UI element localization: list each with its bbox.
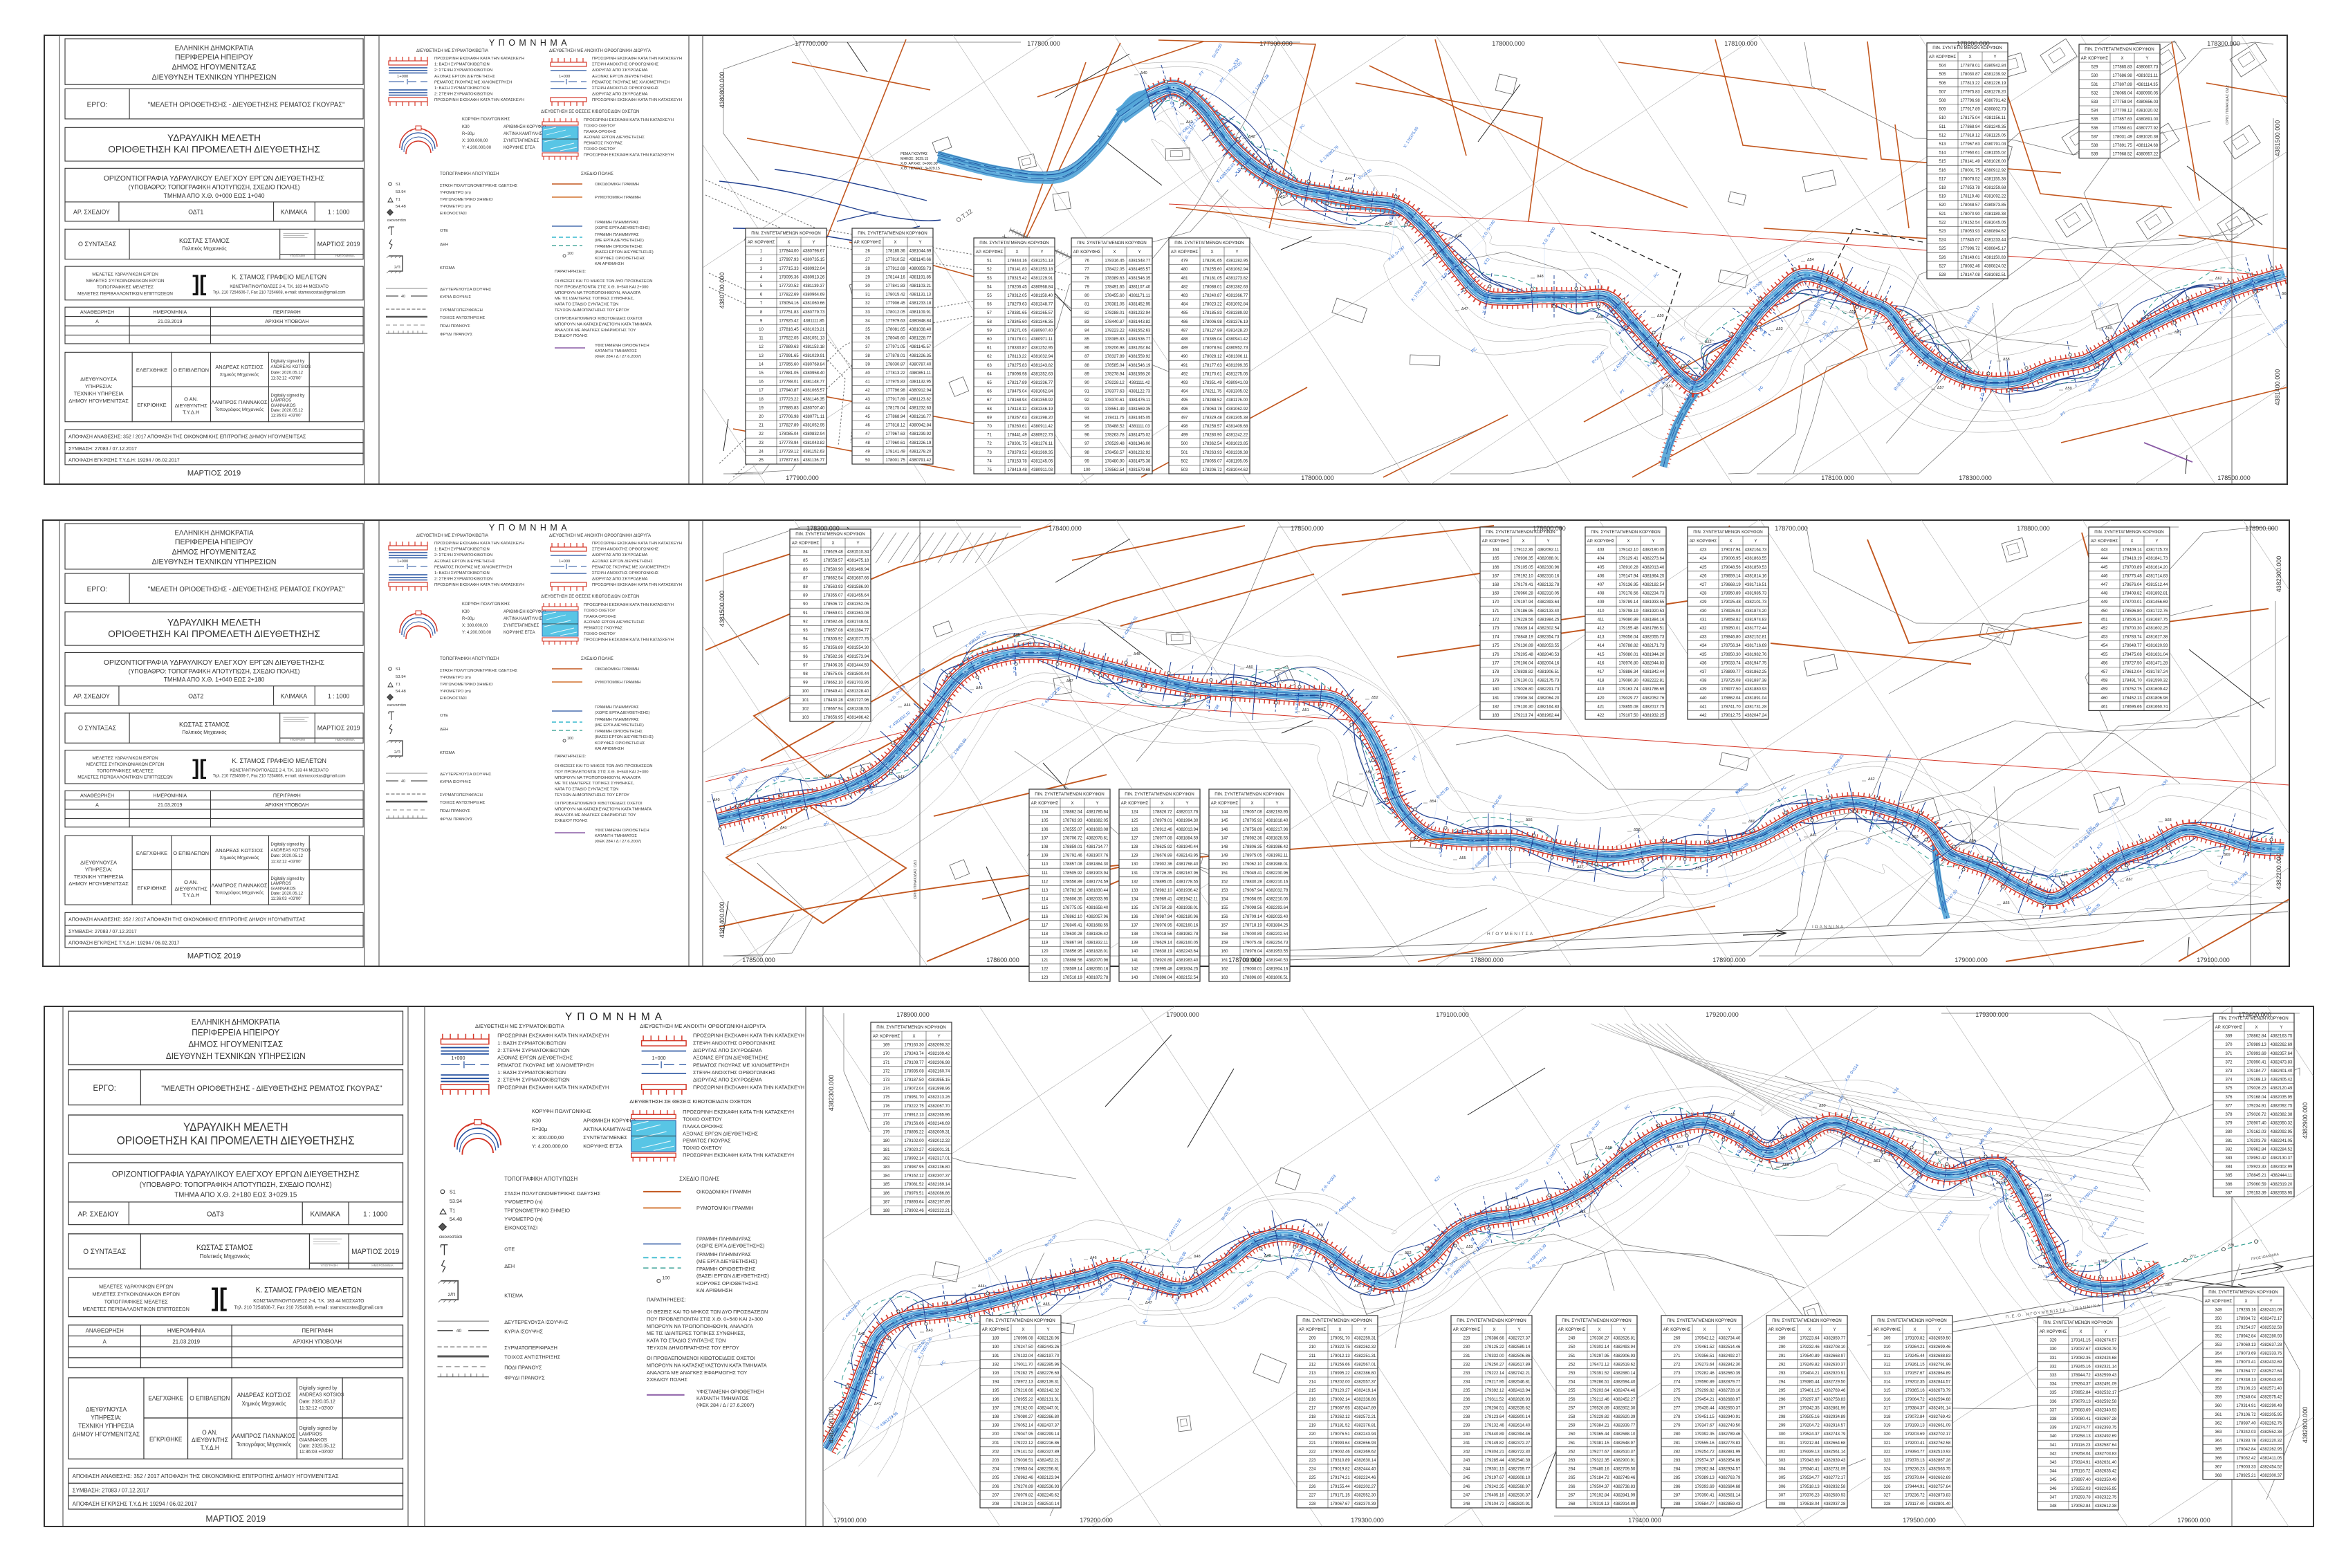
svg-text:294: 294 [1778,1381,1786,1385]
svg-text:GIANNAKOS: GIANNAKOS [299,1438,328,1443]
svg-text:383: 383 [2225,1156,2233,1161]
svg-text:178582.36: 178582.36 [823,655,843,659]
svg-text:X: X [2079,1330,2082,1334]
svg-text:4381569.35: 4381569.35 [1129,407,1151,412]
svg-text:54: 54 [987,285,992,289]
svg-text:Δ45: Δ45 [1043,1302,1050,1307]
svg-text:4382251.31: 4382251.31 [1354,1354,1376,1358]
svg-text:277: 277 [2190,1255,2196,1259]
svg-text:4382729.50: 4382729.50 [1824,1381,1846,1385]
svg-text:143: 143 [1131,976,1138,980]
svg-text:175: 175 [883,1096,890,1100]
svg-text:178592.46: 178592.46 [823,620,843,624]
svg-text:4382589.14: 4382589.14 [1508,1345,1531,1349]
svg-text:179518.04: 179518.04 [1800,1502,1820,1506]
svg-text:4382552.30: 4382552.30 [1354,1493,1376,1497]
svg-text:51: 51 [987,259,992,264]
svg-text:4382826.93: 4382826.93 [1508,1398,1531,1402]
svg-text:41: 41 [865,380,870,385]
svg-text:138: 138 [1131,932,1138,937]
svg-text:179330.27: 179330.27 [1589,1337,1609,1341]
svg-text:ΚΛΙΜΑΚΑ: ΚΛΙΜΑΚΑ [281,692,308,699]
svg-text:4382424.68: 4382424.68 [2095,1356,2117,1361]
svg-text:419: 419 [1597,688,1605,692]
svg-text:4382336.86: 4382336.86 [1354,1398,1376,1402]
svg-text:ΠΑΡΑΤΗΡΗΣΕΙΣ:: ΠΑΡΑΤΗΡΗΣΕΙΣ: [555,755,586,759]
svg-text:178411.75: 178411.75 [1105,416,1125,420]
svg-text:436: 436 [1699,661,1707,665]
svg-text:4382864.89: 4382864.89 [1929,1372,1951,1376]
svg-text:Χημικός Μηχανικός: Χημικός Μηχανικός [219,371,259,377]
svg-text:21.03.2019: 21.03.2019 [172,1338,200,1345]
svg-text:4382839.77: 4382839.77 [1614,1424,1636,1428]
svg-text:Δ57: Δ57 [1677,1145,1683,1150]
svg-text:Digitally signed by: Digitally signed by [271,393,306,398]
svg-text:178291.65: 178291.65 [1202,259,1222,264]
svg-text:178054.16: 178054.16 [779,302,799,306]
svg-text:179141.15: 179141.15 [2071,1339,2091,1343]
svg-text:179019.82: 179019.82 [1330,1468,1350,1472]
svg-text:4382563.75: 4382563.75 [1929,1468,1951,1472]
svg-text:179242.03: 179242.03 [2236,1430,2256,1435]
svg-text:178300.000: 178300.000 [806,525,840,532]
svg-text:338: 338 [2049,1417,2057,1421]
svg-text:Δ61: Δ61 [1810,833,1817,838]
svg-text:535: 535 [2091,118,2098,122]
svg-text:178934.72: 178934.72 [2236,1317,2256,1321]
svg-text:Δ66: Δ66 [2061,874,2068,878]
svg-text:178976.95: 178976.95 [1152,923,1172,928]
svg-text:178305.92: 178305.92 [823,638,843,642]
svg-text:4381278.20: 4381278.20 [1984,90,2006,94]
svg-text:(ΦΕΚ 284 / Δ / 27.6.2007): (ΦΕΚ 284 / Δ / 27.6.2007) [595,840,641,844]
svg-text:Y: Y [1275,802,1278,806]
svg-text:179264.37: 179264.37 [2071,1383,2091,1387]
svg-text:Κ. ΣΤΑΜΟΣ ΓΡΑΦΕΙΟ ΜΕΛΕΤΩΝ: Κ. ΣΤΑΜΟΣ ΓΡΑΦΕΙΟ ΜΕΛΕΤΩΝ [256,1286,362,1294]
svg-text:Y: Y [1517,1328,1520,1332]
svg-text:4381273.82: 4381273.82 [1226,277,1248,281]
svg-text:177900.000: 177900.000 [786,474,819,481]
svg-text:178119.48: 178119.48 [1961,195,1981,199]
svg-text:178100.000: 178100.000 [1821,474,1854,481]
svg-text:178422.05: 178422.05 [1105,268,1125,272]
svg-text:320: 320 [1883,1432,1891,1437]
svg-text:ΤΟΠΟΓΡΑΦΙΚΗ ΑΠΟΤΥΠΩΣΗ: ΤΟΠΟΓΡΑΦΙΚΗ ΑΠΟΤΥΠΩΣΗ [440,656,499,661]
svg-text:Y: 4.200.000,00: Y: 4.200.000,00 [462,146,492,150]
svg-text:178659.01: 178659.01 [823,611,843,616]
svg-text:ΤΕΧΝΙΚΗ ΥΠΗΡΕΣΙΑ: ΤΕΧΝΙΚΗ ΥΠΗΡΕΣΙΑ [78,1422,134,1429]
svg-text:179080.27: 179080.27 [1013,1415,1033,1419]
svg-text:ΑΡ. ΚΟΡΥΦΗΣ: ΑΡ. ΚΟΡΥΦΗΣ [1663,1328,1691,1332]
svg-text:40: 40 [456,1329,462,1334]
svg-text:178658.82: 178658.82 [1721,618,1741,622]
svg-text:4381239.92: 4381239.92 [1984,73,2006,77]
svg-text:272: 272 [1673,1363,1681,1367]
svg-text:4381548.77: 4381548.77 [1129,259,1151,264]
svg-text:530: 530 [2091,74,2098,78]
svg-text:178045.60: 178045.60 [885,337,905,341]
svg-text:Y: Y [1833,1328,1836,1332]
svg-text:ΚΟΡΥΦΗ ΠΟΛΥΓΩΝΙΚΗΣ: ΚΟΡΥΦΗ ΠΟΛΥΓΩΝΙΚΗΣ [462,602,510,607]
svg-text:4381189.38: 4381189.38 [1984,212,2006,216]
svg-text:178263.93: 178263.93 [1202,451,1222,455]
svg-text:177715.33: 177715.33 [779,267,799,271]
svg-text:179524.37: 179524.37 [1800,1432,1820,1437]
svg-text:174: 174 [1492,636,1499,640]
svg-text:ΡΕΜΑΤΟΣ ΓΚΟΥΡΑΣ: ΡΕΜΑΤΟΣ ΓΚΟΥΡΑΣ [584,142,622,146]
svg-text:Δ51: Δ51 [1666,385,1673,389]
svg-text:4380911.03: 4380911.03 [1031,468,1053,472]
svg-text:X: X [1627,539,1629,544]
svg-text:4381243.82: 4381243.82 [1031,364,1053,368]
svg-text:158: 158 [1221,932,1228,937]
svg-text:4382557.37: 4382557.37 [1354,1381,1376,1385]
svg-text:513: 513 [1939,142,1946,147]
svg-text:494: 494 [1181,390,1188,394]
svg-text:4381512.44: 4381512.44 [2146,583,2168,587]
svg-text:408: 408 [1597,592,1605,596]
svg-text:ΠΕΡΙΦΕΡΕΙΑ ΗΠΕΙΡΟΥ: ΠΕΡΙΦΕΡΕΙΑ ΗΠΕΙΡΟΥ [175,53,253,62]
svg-text:221: 221 [1309,1441,1316,1446]
svg-text:4381828.55: 4381828.55 [1266,836,1289,840]
svg-text:ΡΕΜΑΤΟΣ ΓΚΟΥΡΑΣ ΜΕ ΧΙΛΙΟΜΕΤΡΗΣ: ΡΕΜΑΤΟΣ ΓΚΟΥΡΑΣ ΜΕ ΧΙΛΙΟΜΕΤΡΗΣΗ [592,80,669,84]
svg-text:179248.04: 179248.04 [2236,1396,2256,1400]
svg-text:ΔΙΕΥΘΕΤΗΣΗ ΜΕ ΑΝΟΙΧΤΗ ΟΡΘΟΓΩΝΙ: ΔΙΕΥΘΕΤΗΣΗ ΜΕ ΑΝΟΙΧΤΗ ΟΡΘΟΓΩΝΙΚΗ ΔΙΩΡΥΓΑ [640,1023,766,1029]
svg-text:Κ30: Κ30 [462,610,470,614]
svg-text:Δ43: Δ43 [898,775,905,780]
svg-text:178023.22: 178023.22 [1202,303,1222,307]
svg-text:213: 213 [1309,1372,1316,1376]
svg-text:178301.75: 178301.75 [1007,442,1027,446]
svg-text:ΠΙΝ. ΣΥΝΤΕΤΑΓΜΕΝΩΝ ΚΟΡΥΦΩΝ: ΠΙΝ. ΣΥΝΤΕΤΑΓΜΕΝΩΝ ΚΟΡΥΦΩΝ [1591,530,1661,535]
svg-text:178015.42: 178015.42 [885,293,905,297]
svg-text:178600.000: 178600.000 [1533,525,1566,532]
svg-text:363: 363 [2215,1430,2222,1435]
svg-text:ΠΙΝ. ΣΥΝΤΕΤΑΓΜΕΝΩΝ ΚΟΡΥΦΩΝ: ΠΙΝ. ΣΥΝΤΕΤΑΓΜΕΝΩΝ ΚΟΡΥΦΩΝ [1125,792,1194,797]
svg-text:4382190.05: 4382190.05 [1643,548,1665,553]
svg-text:ΑΝΑΛΟΓΑ ΜΕ ΑΝΑΓΚΕΣ ΕΦΑΡΜΟΓΗΣ Τ: ΑΝΑΛΟΓΑ ΜΕ ΑΝΑΓΚΕΣ ΕΦΑΡΜΟΓΗΣ ΤΟΥ [555,813,636,818]
svg-text:4382193.95: 4382193.95 [1266,811,1289,815]
svg-text:X: 300.000,00: X: 300.000,00 [532,1134,564,1141]
svg-text:178995.48: 178995.48 [1152,967,1172,971]
svg-text:4380891.00: 4380891.00 [2136,118,2159,122]
svg-text:ΤΜΗΜΑ ΑΠΟ Χ.Θ. 2+180 ΕΩΣ 3+029: ΤΜΗΜΑ ΑΠΟ Χ.Θ. 2+180 ΕΩΣ 3+029.15 [174,1191,297,1199]
svg-text:179286.51: 179286.51 [1589,1381,1609,1385]
svg-text:1: ΒΑΣΗ ΣΥΡΜΑΤΟΚΙΒΩΤΙΩΝ: 1: ΒΑΣΗ ΣΥΡΜΑΤΟΚΙΒΩΤΙΩΝ [434,571,490,575]
svg-text:ΓΡΑΜΜΗ ΠΛΗΜΜΥΡΑΣ: ΓΡΑΜΜΗ ΠΛΗΜΜΥΡΑΣ [696,1251,751,1257]
svg-text:Πολιτικός Μηχανικός: Πολιτικός Μηχανικός [182,730,227,735]
svg-text:Y: Y [2280,1026,2282,1030]
svg-text:26: 26 [865,250,870,254]
svg-text:415: 415 [1597,653,1605,657]
svg-text:178088.01: 178088.01 [1202,285,1222,289]
svg-text:480: 480 [1181,268,1188,272]
svg-text:178741.70: 178741.70 [1721,705,1741,709]
svg-text:178430.28: 178430.28 [823,699,843,703]
svg-text:(ΥΠΟΒΑΘΡΟ: ΤΟΠΟΓΡΑΦΙΚΗ ΑΠΟΤΥΠΩ: (ΥΠΟΒΑΘΡΟ: ΤΟΠΟΓΡΑΦΙΚΗ ΑΠΟΤΥΠΩΣΗ, ΣΧΕΔΙΟ… [129,667,300,674]
svg-text:Y: Y [812,241,815,245]
svg-text:147: 147 [1221,836,1228,840]
svg-text:ΕΛΛΗΝΙΚΗ ΔΗΜΟΚΡΑΤΙΑ: ΕΛΛΗΝΙΚΗ ΔΗΜΟΚΡΑΤΙΑ [175,529,255,537]
svg-text:Ο ΣΥΝΤΑΞΑΣ: Ο ΣΥΝΤΑΞΑΣ [83,1248,126,1256]
svg-text:4382370.39: 4382370.39 [1354,1502,1376,1506]
svg-text:178649.41: 178649.41 [823,690,843,694]
svg-text:268: 268 [1568,1502,1576,1506]
svg-text:ΕΓΚΡΙΘΗΚΕ: ΕΓΚΡΙΘΗΚΕ [149,1436,183,1443]
svg-text:179400.000: 179400.000 [2238,1011,2271,1018]
svg-text:178488.52: 178488.52 [1105,425,1125,429]
svg-text:4381933.55: 4381933.55 [1643,600,1665,605]
svg-text:178900.000: 178900.000 [896,1011,930,1018]
svg-text:4381475.18: 4381475.18 [847,559,869,563]
svg-text:4381020.38: 4381020.38 [2136,135,2159,139]
svg-text:10: 10 [759,328,764,332]
svg-text:4381456.69: 4381456.69 [2146,600,2168,605]
svg-text:128: 128 [1131,845,1138,849]
svg-text:178030.87: 178030.87 [1960,73,1980,77]
svg-text:4381409.68: 4381409.68 [1226,425,1248,429]
svg-text:ANDREAS KOTSIOS: ANDREAS KOTSIOS [299,1392,344,1397]
svg-text:ΠΙΝ. ΣΥΝΤΕΤΑΓΜΕΝΩΝ ΚΟΡΥΦΩΝ: ΠΙΝ. ΣΥΝΤΕΤΑΓΜΕΝΩΝ ΚΟΡΥΦΩΝ [2085,47,2154,52]
svg-text:226: 226 [1309,1485,1316,1489]
svg-text:ΑΠΟΦΑΣΗ ΑΝΑΘΕΣΗΣ: 352 / 2017 Α: ΑΠΟΦΑΣΗ ΑΝΑΘΕΣΗΣ: 352 / 2017 ΑΠΟΦΑΣΗ ΤΗΣ… [68,434,306,439]
svg-text:177758.94: 177758.94 [2112,100,2132,104]
svg-text:ΜΠΟΡΟΥΝ ΝΑ ΚΑΤΑΣΚΕΥΑΣΤΟΥΝ ΚΑΤΑ: ΜΠΟΡΟΥΝ ΝΑ ΚΑΤΑΣΚΕΥΑΣΤΟΥΝ ΚΑΤΑ ΤΜΗΜΑΤΑ [647,1362,767,1368]
svg-text:1: ΒΑΣΗ ΣΥΡΜΑΤΟΚΙΒΩΤΙΩΝ: 1: ΒΑΣΗ ΣΥΡΜΑΤΟΚΙΒΩΤΙΩΝ [497,1040,566,1046]
svg-text:ΤΟΙΧΙΟ ΟΧΕΤΟΥ: ΤΟΙΧΙΟ ΟΧΕΤΟΥ [584,609,616,613]
svg-text:ΑΞΟΝΑΣ ΕΡΓΩΝ ΔΙΕΥΘΕΤΗΣΗΣ: ΑΞΟΝΑΣ ΕΡΓΩΝ ΔΙΕΥΘΕΤΗΣΗΣ [584,620,645,625]
svg-text:4381369.35: 4381369.35 [1031,451,1053,455]
svg-text:ΔΙΕΥΘΥΝΤΗΣ: ΔΙΕΥΘΥΝΤΗΣ [175,403,207,409]
svg-text:179047.95: 179047.95 [1013,1432,1033,1437]
svg-text:4382763.79: 4382763.79 [1719,1476,1741,1480]
svg-text:178849.41: 178849.41 [1062,923,1082,928]
svg-text:188: 188 [883,1209,890,1213]
svg-text:178223.22: 178223.22 [1105,329,1125,333]
svg-text:63: 63 [987,364,992,368]
svg-text:88: 88 [1084,364,1089,368]
svg-text:Δ44: Δ44 [1345,177,1352,181]
svg-text:ΠΙΝ. ΣΥΝΤΕΤΑΓΜΕΝΩΝ ΚΟΡΥΦΩΝ: ΠΙΝ. ΣΥΝΤΕΤΑΓΜΕΝΩΝ ΚΟΡΥΦΩΝ [1693,530,1763,535]
svg-text:ΚΩΣΤΑΣ ΣΤΑΜΟΣ: ΚΩΣΤΑΣ ΣΤΑΜΟΣ [179,237,230,244]
svg-text:178505.92: 178505.92 [1062,871,1082,876]
svg-text:178141.49: 178141.49 [1960,160,1980,164]
svg-text:275: 275 [1673,1389,1681,1393]
svg-text:216: 216 [1309,1398,1316,1402]
svg-text:341: 341 [2049,1444,2057,1448]
svg-text:4381152.63: 4381152.63 [803,450,825,454]
svg-text:178659.14: 178659.14 [1721,574,1741,578]
svg-text:178725.08: 178725.08 [1721,679,1741,683]
svg-text:4382205.95: 4382205.95 [2260,1413,2282,1417]
svg-text:ΔΙΕΥΘΕΤΗΣΗ ΜΕ ΑΝΟΙΧΤΗ ΟΡΘΟΓΩΝΙ: ΔΙΕΥΘΕΤΗΣΗ ΜΕ ΑΝΟΙΧΤΗ ΟΡΘΟΓΩΝΙΚΗ ΔΙΩΡΥΓΑ [549,48,652,53]
svg-text:ΥΠΟΜΝΗΜΑ: ΥΠΟΜΝΗΜΑ [489,523,571,533]
svg-text:4382906.93: 4382906.93 [1614,1354,1636,1358]
svg-text:61: 61 [987,347,992,351]
svg-text:4381786.69: 4381786.69 [1643,688,1665,692]
svg-text:ΓΡΑΜΜΗ ΟΡΙΟΘΕΤΗΣΗΣ: ΓΡΑΜΜΗ ΟΡΙΟΘΕΤΗΣΗΣ [595,245,643,249]
svg-text:4381828.01: 4381828.01 [1087,950,1109,954]
svg-text:4382372.27: 4382372.27 [1508,1441,1531,1446]
svg-text:178800.000: 178800.000 [2017,525,2050,532]
svg-text:X: X [2130,539,2133,544]
svg-text:ΥΦΙΣΤΑΜΕΝΗ ΟΡΙΟΘΕΤΗΣΗ: ΥΦΙΣΤΑΜΕΝΗ ΟΡΙΟΘΕΤΗΣΗ [696,1388,764,1394]
svg-text:ΟΙΚΟΔΟΜΙΚΗ ΓΡΑΜΜΗ: ΟΙΚΟΔΟΜΙΚΗ ΓΡΑΜΜΗ [595,183,639,187]
svg-text:127: 127 [1131,836,1138,840]
svg-text:4382572.21: 4382572.21 [1354,1415,1376,1419]
svg-text:178992.14: 178992.14 [904,1156,924,1161]
svg-text:178408.82: 178408.82 [2122,592,2142,596]
svg-text:179264.21: 179264.21 [1905,1345,1925,1349]
svg-text:297: 297 [1778,1406,1786,1410]
svg-text:179026.23: 179026.23 [2246,1087,2266,1091]
svg-text:177844.00: 177844.00 [779,250,799,254]
svg-text:178997.40: 178997.40 [2071,1478,2091,1482]
svg-text:483: 483 [1181,294,1188,298]
svg-text:ΚΑΤΑ ΤΟ ΣΤΑΔΙΟ ΣΥΝΤΑΞΗΣ ΤΩΝ: ΚΑΤΑ ΤΟ ΣΤΑΔΙΟ ΣΥΝΤΑΞΗΣ ΤΩΝ [555,788,618,792]
svg-text:179132.46: 179132.46 [1484,1424,1504,1428]
svg-text:317: 317 [1883,1406,1891,1410]
svg-text:384: 384 [2225,1165,2233,1170]
svg-text:ΔΙΕΥΘΥΝΟΥΣΑ: ΔΙΕΥΘΥΝΟΥΣΑ [80,376,118,382]
svg-text:4382330.96: 4382330.96 [1537,566,1560,570]
svg-text:ΥΨΟΜΕΤΡΟ (m): ΥΨΟΜΕΤΡΟ (m) [440,191,471,195]
svg-text:118: 118 [1042,932,1049,937]
svg-text:4382934.89: 4382934.89 [1824,1415,1846,1419]
svg-text:ΜΕΛΕΤΕΣ ΠΕΡΙΒΑΛΛΟΝΤΙΚΩΝ ΕΠΙΠΤΩ: ΜΕΛΕΤΕΣ ΠΕΡΙΒΑΛΛΟΝΤΙΚΩΝ ΕΠΙΠΤΩΣΕΩΝ [82,1306,189,1312]
svg-text:4381122.73: 4381122.73 [1129,390,1151,394]
svg-text:178028.12: 178028.12 [1202,355,1222,359]
svg-text:4382200.000: 4382200.000 [2275,854,2282,890]
svg-text:4382934.57: 4382934.57 [1719,1468,1741,1472]
svg-text:4382920.91: 4382920.91 [1824,1372,1846,1376]
svg-text:274: 274 [1673,1381,1681,1385]
svg-text:179073.69: 179073.69 [2236,1352,2256,1356]
svg-text:Δ68: Δ68 [2165,818,2172,822]
svg-text:4381359.92: 4381359.92 [1031,398,1053,403]
svg-text:4381940.44: 4381940.44 [1176,845,1199,849]
svg-text:177857.63: 177857.63 [2112,118,2132,122]
svg-text:178830.28: 178830.28 [1242,880,1262,884]
svg-text:1+000: 1+000 [652,1055,665,1061]
svg-text:ΠΡΟΣΩΡΙΝΗ ΕΚΣΚΑΦΗ ΚΑΤΑ ΤΗΝ ΚΑΤ: ΠΡΟΣΩΡΙΝΗ ΕΚΣΚΑΦΗ ΚΑΤΑ ΤΗΝ ΚΑΤΑΣΚΕΥΗ [584,118,674,122]
svg-text:322: 322 [1883,1450,1891,1454]
svg-text:4381787.24: 4381787.24 [2146,670,2168,674]
svg-text:4382167.96: 4382167.96 [1176,871,1199,876]
svg-text:350: 350 [2215,1317,2222,1321]
svg-text:Y: Y [1652,539,1654,544]
svg-text:179100.000: 179100.000 [2197,957,2230,963]
svg-text:4380922.73: 4380922.73 [1031,434,1053,438]
svg-text:ΠΛΑΚΑ ΟΡΟΦΗΣ: ΠΛΑΚΑ ΟΡΟΦΗΣ [683,1123,723,1129]
svg-text:178580.90: 178580.90 [823,568,843,572]
svg-text:4381398.20: 4381398.20 [1031,416,1053,420]
svg-text:312: 312 [1883,1363,1891,1367]
svg-text:192: 192 [992,1363,999,1367]
svg-text:4381814.16: 4381814.16 [1745,574,1767,578]
svg-text:Δ52: Δ52 [1405,1251,1412,1255]
svg-text:178926.04: 178926.04 [1721,609,1741,614]
svg-text:4381748.61: 4381748.61 [847,620,869,624]
svg-text:4382688.10: 4382688.10 [1614,1432,1636,1437]
svg-text:X: X [1022,1328,1024,1332]
svg-text:4381092.22: 4381092.22 [1984,195,2006,199]
svg-text:39: 39 [865,362,870,367]
svg-text:372: 372 [2225,1060,2233,1064]
svg-text:179222.12: 179222.12 [1013,1441,1033,1446]
svg-text:178846.80: 178846.80 [1721,636,1741,640]
svg-text:4382044.83: 4382044.83 [1643,661,1665,665]
svg-text:ΚΑΙ ΑΡΙΘΜΗΣΗ: ΚΑΙ ΑΡΙΘΜΗΣΗ [595,262,624,266]
svg-text:179187.50: 179187.50 [904,1078,924,1082]
svg-text:ΤΟΙΧΟΣ ΑΝΤΙΣΤΗΡΙΞΗΣ: ΤΟΙΧΟΣ ΑΝΤΙΣΤΗΡΙΞΗΣ [440,801,486,805]
svg-text:4382452.27: 4382452.27 [1614,1398,1636,1402]
svg-text:4382146.69: 4382146.69 [928,1122,950,1126]
svg-text:4381500.000: 4381500.000 [719,591,726,627]
svg-text:4382637.28: 4382637.28 [2260,1343,2282,1347]
svg-text:40: 40 [401,295,405,299]
svg-text:179342.35: 179342.35 [1800,1406,1820,1410]
svg-text:4381399.35: 4381399.35 [1226,364,1248,368]
svg-text:ΔΙΕΥΘΥΝΟΥΣΑ: ΔΙΕΥΘΥΝΟΥΣΑ [86,1405,127,1412]
svg-text:229: 229 [1463,1337,1470,1341]
svg-text:178839.14: 178839.14 [1513,627,1533,631]
svg-text:4382032.78: 4382032.78 [1266,889,1289,893]
svg-text:54.48: 54.48 [450,1216,462,1222]
svg-text:101: 101 [802,699,809,703]
svg-text:4381305.38: 4381305.38 [1226,416,1248,420]
svg-text:106: 106 [1041,828,1049,832]
svg-text:4382317.01: 4382317.01 [928,1156,950,1161]
svg-text:ΔΕΥΤΕΡΕΥΟΥΣΑ ΙΣΟΥΨΗΣ: ΔΕΥΤΕΡΕΥΟΥΣΑ ΙΣΟΥΨΗΣ [504,1319,569,1325]
svg-text:1 : 1000: 1 : 1000 [328,692,350,699]
svg-text:179162.12: 179162.12 [904,1174,924,1179]
svg-text:ΠΡΟΣΩΡΙΝΗ ΕΚΣΚΑΦΗ ΚΑΤΑ ΤΗΝ ΚΑΤ: ΠΡΟΣΩΡΙΝΗ ΕΚΣΚΑΦΗ ΚΑΤΑ ΤΗΝ ΚΑΤΑΣΚΕΥΗ [434,98,524,102]
svg-text:309: 309 [1883,1337,1891,1341]
svg-text:179384.37: 179384.37 [1905,1406,1925,1410]
svg-text:4382648.97: 4382648.97 [1614,1441,1636,1446]
svg-text:209: 209 [1309,1337,1316,1341]
svg-text:ΠΡΟΣΩΡΙΝΗ ΕΚΣΚΑΦΗ ΚΑΤΑ ΤΗΝ ΚΑΤ: ΠΡΟΣΩΡΙΝΗ ΕΚΣΚΑΦΗ ΚΑΤΑ ΤΗΝ ΚΑΤΑΣΚΕΥΗ [592,98,682,102]
svg-text:4381023.85: 4381023.85 [1226,442,1248,446]
svg-text:ΟΙ ΠΡΟΒΛΕΠΟΜΕΝΟΙ ΚΙΒΩΤΟΕΙΔΕΙΣ: ΟΙ ΠΡΟΒΛΕΠΟΜΕΝΟΙ ΚΙΒΩΤΟΕΙΔΕΙΣ ΟΧΕΤΟΙ [555,317,643,321]
svg-text:404: 404 [1597,557,1605,561]
svg-text:Δ56: Δ56 [1526,818,1533,822]
svg-text:245: 245 [1463,1476,1470,1480]
svg-text:277: 277 [1673,1406,1681,1410]
svg-text:4382220.32: 4382220.32 [2260,1439,2282,1444]
svg-text:417: 417 [1597,670,1605,674]
svg-text:ΕΙΚΟΝΟΣΤΑΣΙ: ΕΙΚΟΝΟΣΤΑΣΙ [504,1224,537,1230]
svg-text:ΠΙΝ. ΣΥΝΤΕΤΑΓΜΕΝΩΝ ΚΟΡΥΦΩΝ: ΠΙΝ. ΣΥΝΤΕΤΑΓΜΕΝΩΝ ΚΟΡΥΦΩΝ [1457,1318,1526,1323]
svg-text:ΠΙΝ. ΣΥΝΤΕΤΑΓΜΕΝΩΝ ΚΟΡΥΦΩΝ: ΠΙΝ. ΣΥΝΤΕΤΑΓΜΕΝΩΝ ΚΟΡΥΦΩΝ [1877,1318,1947,1323]
svg-text:4382532.58: 4382532.58 [2260,1326,2282,1330]
svg-text:177778.94: 177778.94 [779,441,799,445]
svg-text:4381153.18: 4381153.18 [803,345,825,349]
svg-text:178806.35: 178806.35 [1242,845,1262,849]
svg-text:177827.89: 177827.89 [779,424,799,428]
svg-text:178962.84: 178962.84 [2246,1147,2266,1152]
svg-text:179064.72: 179064.72 [1905,1398,1925,1402]
svg-text:134: 134 [1131,898,1138,902]
svg-text:Τοπογράφος Μηχανικός: Τοπογράφος Μηχανικός [215,890,264,896]
svg-text:Χ.Θ. 5+608: Χ.Θ. 5+608 [1013,653,1017,673]
svg-text:178783.74: 178783.74 [2122,636,2142,640]
svg-text:178175.04: 178175.04 [885,406,905,410]
svg-text:ΠΙΝ. ΣΥΝΤΕΤΑΓΜΕΝΩΝ ΚΟΡΥΦΩΝ: ΠΙΝ. ΣΥΝΤΕΤΑΓΜΕΝΩΝ ΚΟΡΥΦΩΝ [2043,1320,2113,1325]
svg-text:178153.78: 178153.78 [1007,459,1027,463]
svg-text:4381806.51: 4381806.51 [1266,976,1289,980]
